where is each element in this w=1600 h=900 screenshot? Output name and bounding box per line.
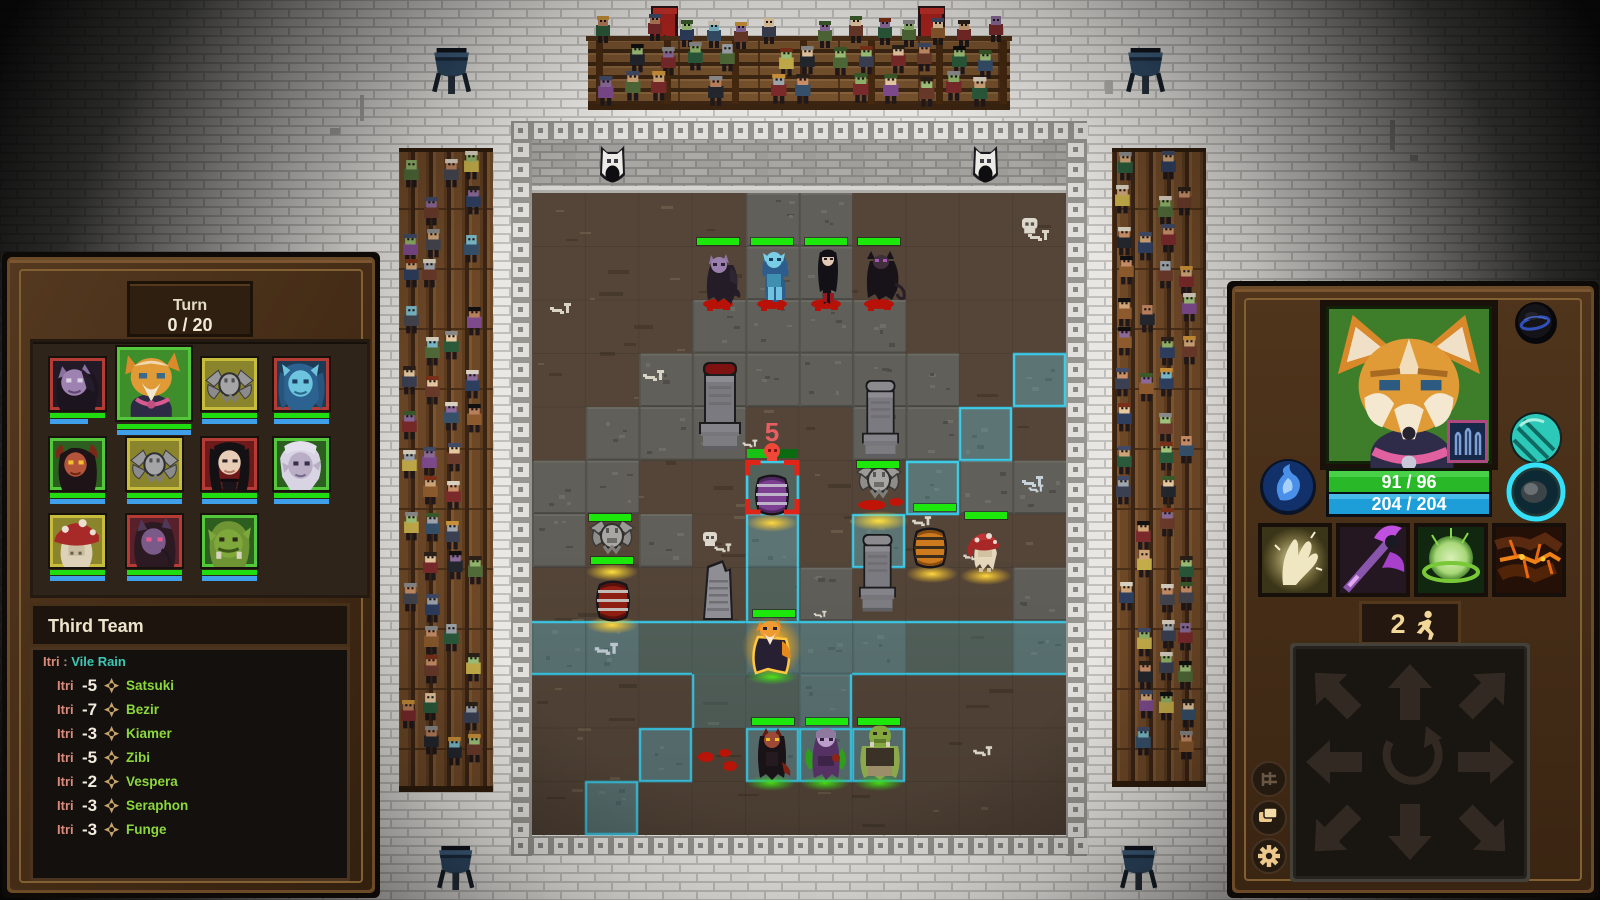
svg-text:-3: -3 [82,796,97,815]
svg-text:Zibi: Zibi [126,750,150,765]
svg-text:Third Team: Third Team [48,616,144,636]
svg-text:-3: -3 [82,820,97,839]
svg-text:Turn: Turn [173,297,207,314]
svg-text:Itri: Itri [57,678,74,693]
svg-text:-2: -2 [82,772,97,791]
svg-text:91 / 96: 91 / 96 [1381,472,1436,492]
svg-text:Itri: Itri [57,726,74,741]
svg-text:204 / 204: 204 / 204 [1371,494,1446,514]
svg-text:Satsuki: Satsuki [126,678,174,693]
svg-text:0 / 20: 0 / 20 [167,315,212,335]
svg-text:-7: -7 [82,700,97,719]
svg-text:-5: -5 [82,748,97,767]
svg-text:-5: -5 [82,676,97,695]
svg-text:Itri: Itri [57,750,74,765]
svg-text:Itri: Itri [57,774,74,789]
svg-text:Funge: Funge [126,822,167,837]
svg-text:Vespera: Vespera [126,774,178,789]
svg-text:-3: -3 [82,724,97,743]
svg-text:Itri: Itri [57,798,74,813]
svg-text:Kiamer: Kiamer [126,726,173,741]
svg-text:Itri: Itri [57,702,74,717]
svg-text:2: 2 [1390,609,1405,639]
svg-text:Itri : Vile Rain: Itri : Vile Rain [43,654,126,669]
svg-text:Bezir: Bezir [126,702,160,717]
svg-text:Seraphon: Seraphon [126,798,188,813]
svg-text:Itri: Itri [57,822,74,837]
